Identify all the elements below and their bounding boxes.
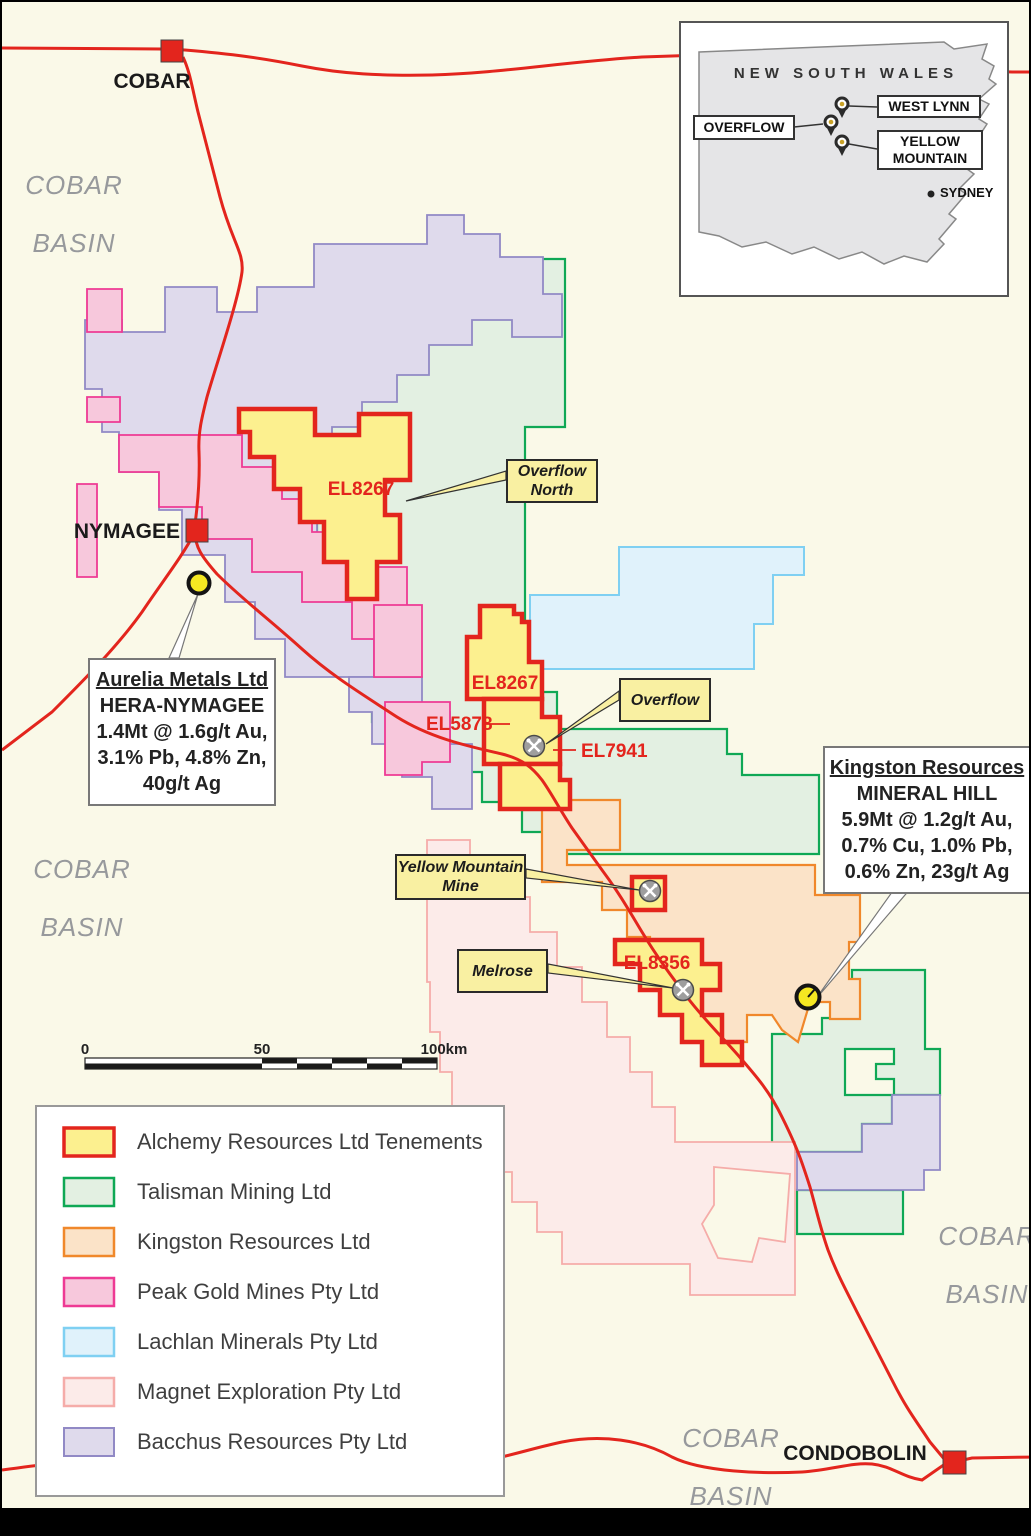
legend-item-bacchus: Bacchus Resources Pty Ltd [61, 1425, 503, 1458]
region-peak-1 [87, 289, 122, 332]
aurelia-company: Aurelia Metals Ltd [92, 667, 272, 693]
callout-yellow-mountain-label: Yellow Mountain Mine [397, 858, 524, 896]
town-marker-cobar [161, 40, 183, 62]
kingston-grade-2: 0.7% Cu, 1.0% Pb, [827, 833, 1027, 859]
legend-swatch-bacchus-icon [61, 1425, 117, 1459]
el-label-el8267-south: EL8267 [466, 673, 544, 695]
basin-line2: BASIN [9, 229, 139, 258]
basin-line2: BASIN [922, 1280, 1031, 1309]
basin-line1: COBAR [9, 171, 139, 200]
sydney-dot [928, 191, 935, 198]
region-peak-5 [374, 605, 422, 677]
el-label-el8356: EL8356 [618, 953, 696, 975]
basin-label-w: COBAR BASIN [17, 826, 147, 971]
callout-melrose-label: Melrose [472, 962, 532, 981]
scale-label-end: 100km [414, 1041, 474, 1058]
deposit-marker-mineral-hill [797, 986, 820, 1009]
aurelia-grade-3: 40g/t Ag [92, 771, 272, 797]
kingston-grade-3: 0.6% Zn, 23g/t Ag [827, 859, 1027, 885]
town-label-cobar: COBAR [102, 70, 202, 94]
legend-swatch-talisman-icon [61, 1175, 117, 1209]
aurelia-grade-2: 3.1% Pb, 4.8% Zn, [92, 745, 272, 771]
town-label-condobolin: CONDOBOLIN [774, 1442, 936, 1466]
town-marker-nymagee [186, 519, 208, 542]
legend-label: Peak Gold Mines Pty Ltd [137, 1279, 379, 1305]
scale-label-start: 0 [78, 1041, 92, 1058]
kingston-project: MINERAL HILL [827, 781, 1027, 807]
legend-item-peak-gold: Peak Gold Mines Pty Ltd [61, 1275, 503, 1308]
scale-label-middle: 50 [248, 1041, 276, 1058]
mine-icon-melrose [673, 980, 694, 1001]
legend-item-magnet: Magnet Exploration Pty Ltd [61, 1375, 503, 1408]
basin-line1: COBAR [17, 855, 147, 884]
leader-aurelia [169, 594, 198, 658]
mine-icon-yellow-mountain [640, 881, 661, 902]
basin-line2: BASIN [17, 913, 147, 942]
aurelia-grade-1: 1.4Mt @ 1.6g/t Au, [92, 719, 272, 745]
infobox-kingston: Kingston Resources MINERAL HILL 5.9Mt @ … [823, 746, 1031, 894]
legend-label: Alchemy Resources Ltd Tenements [137, 1129, 483, 1155]
basin-label-nw: COBAR BASIN [9, 142, 139, 287]
inset-label-text: YELLOW MOUNTAIN [879, 133, 981, 167]
basin-line1: COBAR [922, 1222, 1031, 1251]
mine-icon-overflow [524, 736, 545, 757]
region-lachlan [530, 547, 804, 669]
bottom-border-bar [2, 1508, 1031, 1536]
town-label-nymagee: NYMAGEE [40, 520, 180, 544]
town-marker-condobolin [943, 1451, 966, 1474]
inset-map: NEW SOUTH WALES WEST LYNN OVERFLOW YELLO… [679, 21, 1009, 297]
legend-swatch-magnet-icon [61, 1375, 117, 1409]
inset-label-overflow: OVERFLOW [693, 115, 795, 140]
deposit-marker-hera [189, 573, 210, 594]
legend-item-alchemy: Alchemy Resources Ltd Tenements [61, 1125, 503, 1158]
region-peak-2 [87, 397, 120, 422]
basin-line1: COBAR [666, 1424, 796, 1453]
legend-label: Bacchus Resources Pty Ltd [137, 1429, 407, 1455]
kingston-company: Kingston Resources [827, 755, 1027, 781]
infobox-aurelia: Aurelia Metals Ltd HERA-NYMAGEE 1.4Mt @ … [88, 658, 276, 806]
basin-label-e: COBAR BASIN [922, 1193, 1031, 1338]
legend-item-talisman: Talisman Mining Ltd [61, 1175, 503, 1208]
inset-label-text: OVERFLOW [704, 119, 785, 136]
legend-label: Lachlan Minerals Pty Ltd [137, 1329, 378, 1355]
legend-label: Magnet Exploration Pty Ltd [137, 1379, 401, 1405]
callout-melrose: Melrose [457, 949, 548, 993]
legend-label: Kingston Resources Ltd [137, 1229, 371, 1255]
legend-swatch-peak-gold-icon [61, 1275, 117, 1309]
inset-label-sydney: SYDNEY [940, 185, 1010, 200]
el-label-el7941: EL7941 [581, 741, 647, 763]
inset-label-text: WEST LYNN [888, 98, 969, 115]
legend-label: Talisman Mining Ltd [137, 1179, 331, 1205]
callout-overflow-label: Overflow [631, 691, 699, 710]
legend-swatch-alchemy-icon [61, 1125, 117, 1159]
aurelia-project: HERA-NYMAGEE [92, 693, 272, 719]
el-label-el8267-north: EL8267 [322, 479, 400, 501]
basin-line2: BASIN [666, 1482, 796, 1511]
legend-swatch-lachlan-icon [61, 1325, 117, 1359]
callout-yellow-mountain-mine: Yellow Mountain Mine [395, 854, 526, 900]
inset-region-title: NEW SOUTH WALES [701, 65, 991, 82]
callout-overflow-north: Overflow North [506, 459, 598, 503]
scale-bar [85, 1058, 437, 1069]
el-label-el5878: EL5878 [426, 714, 488, 736]
kingston-grade-1: 5.9Mt @ 1.2g/t Au, [827, 807, 1027, 833]
inset-label-yellow-mountain: YELLOW MOUNTAIN [877, 130, 983, 170]
callout-overflow-north-label: Overflow North [508, 462, 596, 500]
inset-label-west-lynn: WEST LYNN [877, 95, 981, 118]
tenement-map: COBAR NYMAGEE CONDOBOLIN COBAR BASIN COB… [0, 0, 1031, 1536]
legend-swatch-kingston-icon [61, 1225, 117, 1259]
callout-overflow: Overflow [619, 678, 711, 722]
map-legend: Alchemy Resources Ltd Tenements Talisman… [35, 1105, 505, 1497]
legend-item-lachlan: Lachlan Minerals Pty Ltd [61, 1325, 503, 1358]
region-group-lachlan [530, 547, 804, 669]
legend-item-kingston: Kingston Resources Ltd [61, 1225, 503, 1258]
